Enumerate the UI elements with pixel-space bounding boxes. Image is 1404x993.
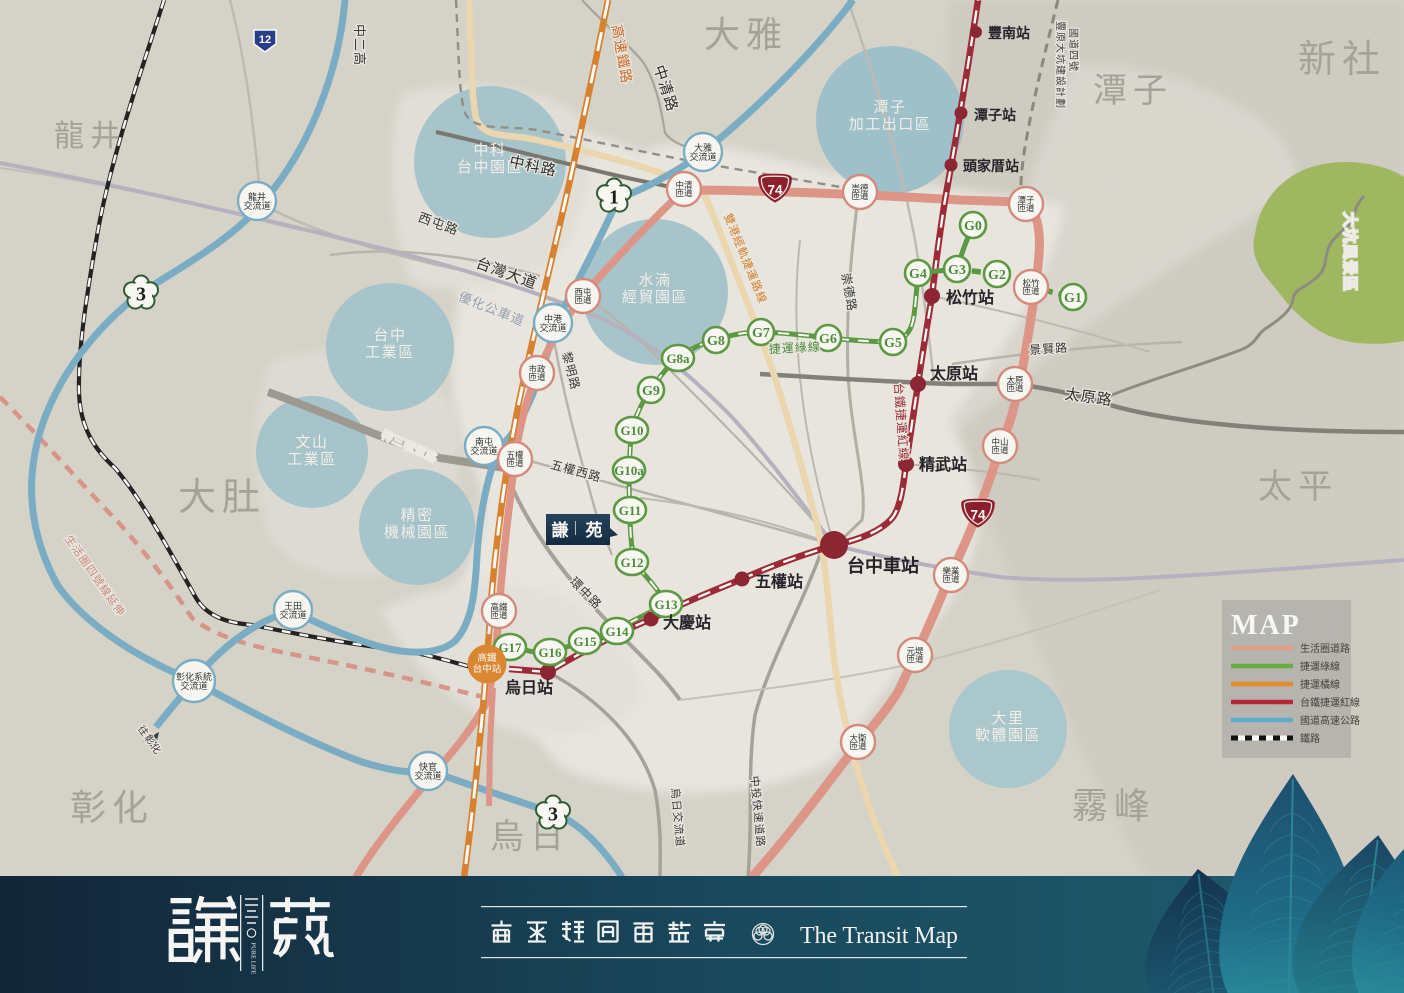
svg-text:PURE LIFE: PURE LIFE: [250, 943, 257, 975]
svg-text:The Transit Map: The Transit Map: [800, 923, 958, 949]
